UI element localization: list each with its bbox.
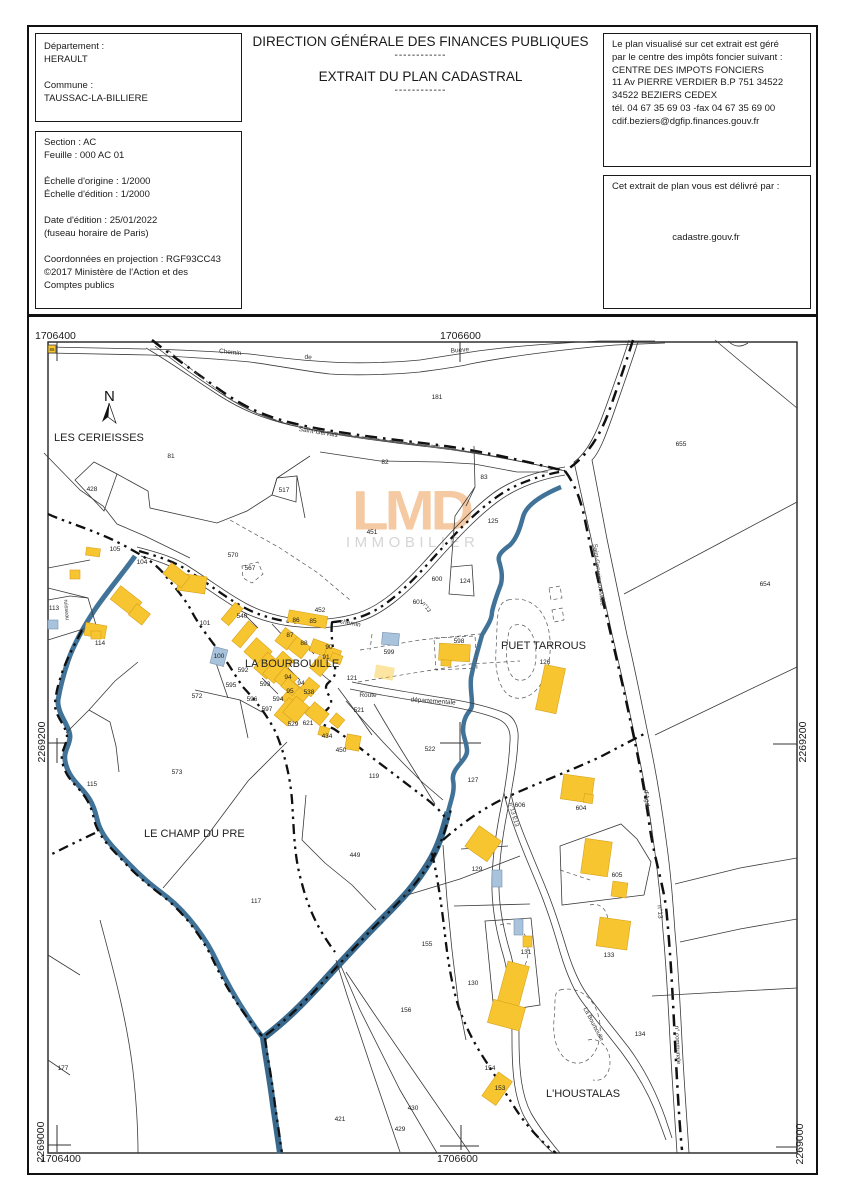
svg-text:134: 134 bbox=[635, 1031, 646, 1038]
svg-text:593: 593 bbox=[260, 681, 271, 688]
svg-text:n°13: n°13 bbox=[655, 905, 664, 919]
svg-text:Bueve: Bueve bbox=[450, 346, 469, 355]
svg-text:130: 130 bbox=[468, 980, 479, 987]
svg-text:85: 85 bbox=[309, 618, 317, 625]
svg-text:521: 521 bbox=[354, 707, 365, 714]
svg-text:83: 83 bbox=[480, 474, 488, 481]
svg-text:567: 567 bbox=[245, 565, 256, 572]
svg-text:124: 124 bbox=[460, 578, 471, 585]
svg-text:105: 105 bbox=[110, 546, 121, 553]
svg-text:596: 596 bbox=[247, 696, 258, 703]
svg-text:540: 540 bbox=[237, 613, 248, 620]
svg-text:604: 604 bbox=[576, 805, 587, 812]
svg-text:600: 600 bbox=[432, 576, 443, 583]
svg-text:de: de bbox=[304, 354, 312, 362]
svg-text:449: 449 bbox=[350, 852, 361, 859]
svg-text:115: 115 bbox=[87, 781, 98, 788]
svg-text:621: 621 bbox=[303, 720, 314, 727]
svg-text:655: 655 bbox=[676, 441, 687, 448]
svg-text:131: 131 bbox=[521, 949, 532, 956]
svg-text:117: 117 bbox=[251, 898, 262, 905]
svg-text:chemin: chemin bbox=[339, 618, 361, 629]
svg-text:605: 605 bbox=[612, 872, 623, 879]
svg-text:597: 597 bbox=[262, 706, 273, 713]
svg-text:181: 181 bbox=[432, 394, 443, 401]
svg-text:434: 434 bbox=[322, 733, 333, 740]
svg-text:429: 429 bbox=[395, 1126, 406, 1133]
svg-text:n°13: n°13 bbox=[420, 601, 431, 614]
svg-text:114: 114 bbox=[95, 640, 106, 647]
svg-text:104: 104 bbox=[137, 559, 148, 566]
svg-text:101: 101 bbox=[200, 620, 211, 627]
svg-text:n° communale: n° communale bbox=[673, 1026, 681, 1065]
svg-text:572: 572 bbox=[192, 693, 203, 700]
svg-text:LES CERIEISSES: LES CERIEISSES bbox=[54, 432, 144, 444]
svg-text:100: 100 bbox=[214, 653, 225, 660]
svg-text:595: 595 bbox=[226, 682, 237, 689]
svg-text:86: 86 bbox=[49, 347, 55, 352]
svg-text:121: 121 bbox=[347, 675, 358, 682]
svg-text:153: 153 bbox=[495, 1085, 506, 1092]
svg-text:598: 598 bbox=[454, 638, 465, 645]
svg-text:86: 86 bbox=[292, 617, 300, 624]
svg-text:82: 82 bbox=[381, 459, 389, 466]
svg-text:PUET TARROUS: PUET TARROUS bbox=[501, 640, 586, 652]
svg-text:2269200: 2269200 bbox=[797, 721, 809, 762]
svg-text:94: 94 bbox=[297, 680, 305, 687]
svg-text:529: 529 bbox=[288, 721, 299, 728]
svg-text:LE CHAMP DU PRE: LE CHAMP DU PRE bbox=[144, 828, 245, 840]
svg-text:428: 428 bbox=[87, 486, 98, 493]
svg-text:155: 155 bbox=[422, 941, 433, 948]
svg-text:592: 592 bbox=[238, 667, 249, 674]
svg-text:2269000: 2269000 bbox=[794, 1123, 806, 1164]
svg-text:Saint-Gervais-sur-Mare: Saint-Gervais-sur-Mare bbox=[591, 544, 605, 607]
svg-text:d'Agde: d'Agde bbox=[642, 790, 651, 811]
svg-text:90: 90 bbox=[325, 644, 333, 651]
svg-text:125: 125 bbox=[488, 518, 499, 525]
svg-text:154: 154 bbox=[485, 1065, 496, 1072]
svg-text:L'HOUSTALAS: L'HOUSTALAS bbox=[546, 1088, 620, 1100]
svg-text:430: 430 bbox=[408, 1105, 419, 1112]
svg-text:ruisseau: ruisseau bbox=[62, 599, 70, 620]
svg-text:421: 421 bbox=[335, 1116, 346, 1123]
svg-text:133: 133 bbox=[604, 952, 615, 959]
svg-text:91: 91 bbox=[322, 654, 330, 661]
svg-text:594: 594 bbox=[273, 696, 284, 703]
svg-text:Route: Route bbox=[359, 692, 377, 699]
svg-text:599: 599 bbox=[384, 649, 395, 656]
svg-text:95: 95 bbox=[286, 688, 294, 695]
svg-text:87: 87 bbox=[286, 632, 294, 639]
svg-text:573: 573 bbox=[172, 769, 183, 776]
svg-text:654: 654 bbox=[760, 581, 771, 588]
svg-text:156: 156 bbox=[401, 1007, 412, 1014]
svg-text:119: 119 bbox=[369, 773, 380, 780]
svg-text:450: 450 bbox=[336, 747, 347, 754]
svg-text:127: 127 bbox=[468, 777, 479, 784]
svg-text:81: 81 bbox=[167, 453, 175, 460]
svg-text:2269200: 2269200 bbox=[36, 721, 48, 762]
svg-text:Chemin: Chemin bbox=[219, 348, 242, 357]
svg-text:1706600: 1706600 bbox=[440, 330, 481, 342]
svg-text:2269000: 2269000 bbox=[35, 1121, 47, 1162]
svg-text:N: N bbox=[104, 388, 115, 405]
svg-text:113: 113 bbox=[49, 605, 60, 612]
svg-text:451: 451 bbox=[367, 529, 378, 536]
svg-text:517: 517 bbox=[279, 487, 290, 494]
svg-text:1706400: 1706400 bbox=[35, 330, 76, 342]
svg-text:452: 452 bbox=[315, 607, 326, 614]
svg-text:88: 88 bbox=[300, 640, 308, 647]
svg-text:538: 538 bbox=[304, 689, 315, 696]
svg-text:606: 606 bbox=[515, 802, 526, 809]
svg-text:129: 129 bbox=[472, 866, 483, 873]
svg-text:177: 177 bbox=[58, 1065, 69, 1072]
svg-text:départementale: départementale bbox=[410, 696, 456, 706]
svg-text:570: 570 bbox=[228, 552, 239, 559]
svg-text:1706600: 1706600 bbox=[437, 1153, 478, 1165]
svg-text:126: 126 bbox=[540, 659, 551, 666]
svg-text:522: 522 bbox=[425, 746, 436, 753]
svg-text:94: 94 bbox=[284, 674, 292, 681]
